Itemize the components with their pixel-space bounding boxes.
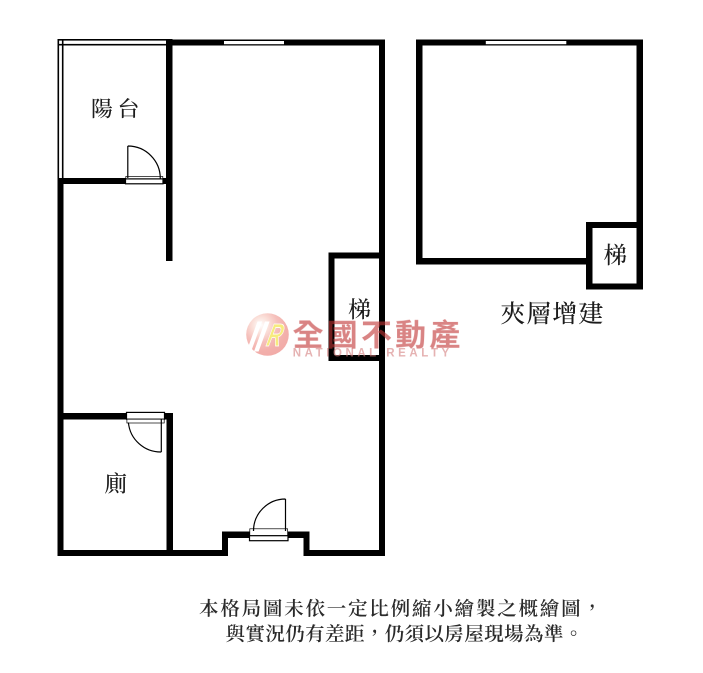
- svg-text:NATIONAL REALTY: NATIONAL REALTY: [293, 348, 453, 360]
